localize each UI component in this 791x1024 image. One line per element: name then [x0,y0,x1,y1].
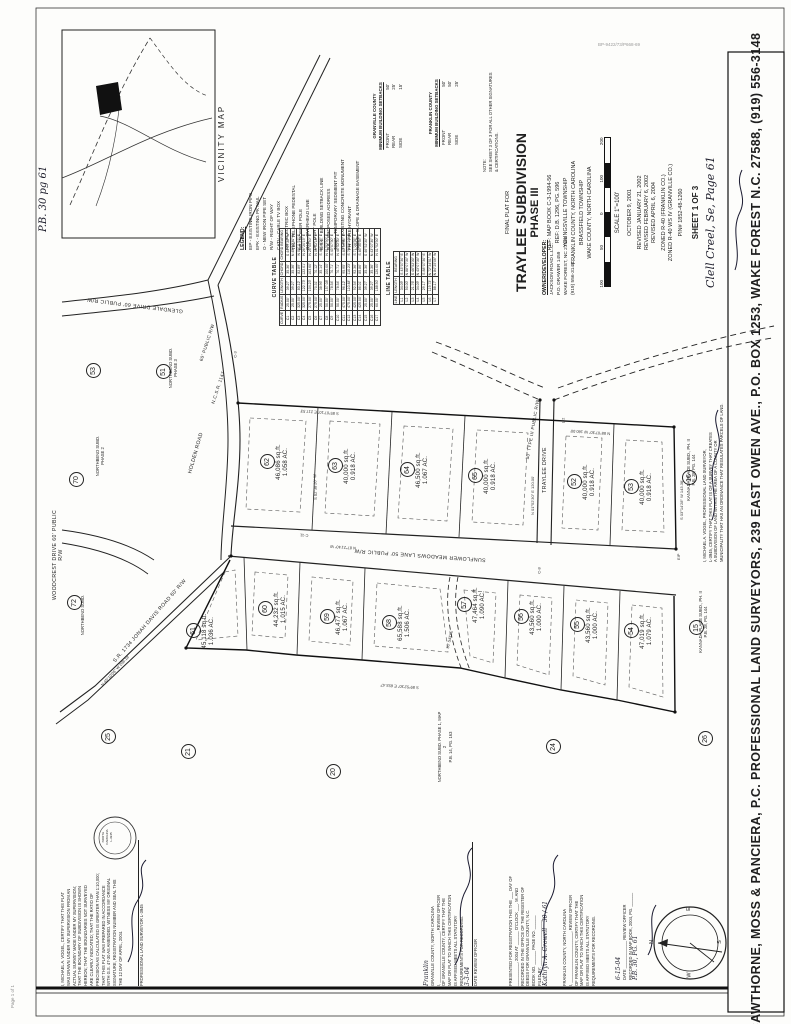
lot-number-circle: 59 [320,610,335,625]
county-2: WAKE COUNTY, NORTH CAROLINA [587,55,593,370]
kannada-place-note: KANNADA PLACE SUBD., PH. IIP.B. 28, PG. … [686,424,698,516]
lot-number-circle: 60 [258,602,273,617]
lot-area-acres: 1.067 AC. [423,452,430,488]
north-arrow-compass [654,907,726,979]
compass-n: N [649,940,655,944]
owner-address-1: P.O. DRAWER 1459 [556,219,563,295]
lot-62: 62 46,086 sq.ft.1.058 AC. [260,419,296,505]
bearing-label: S 02°38'20" W [312,474,318,500]
lot-area-sqft: 40,000 sq.ft. [484,458,491,494]
granville-setbacks-subtitle: MINIMUM BUILDING SETBACKS [378,64,384,168]
lot-58: 58 65,588 sq.ft.1.506 AC. [382,581,418,665]
lot-number-circle: 56 [514,610,529,625]
lot-52: 52 40,000 sq.ft.0.918 AC. [567,439,603,525]
vicinity-box [62,30,215,238]
lot-area-sqft: 40,000 sq.ft. [344,448,351,484]
revision-3: REVISED APRIL 6, 2004 [651,55,657,370]
northbend-phase2-note: NORTHBEND SUBD.PHASE 2 [95,427,107,485]
lot-area-acres: 1.067 AC. [343,599,350,635]
lot-divider [561,586,564,690]
adjacent-parcel: 20 [325,764,341,780]
lot-divider [505,581,508,678]
kannada-place-note: KANNADA PLACE SUBD., PH. IIP.B. 28, PG. … [698,576,710,668]
phase-label: PHASE III [529,55,541,370]
vicinity-site-marker [96,82,122,115]
franklin-review-certification: FRANKLIN COUNTY, NORTH CAROLINAI, ______… [562,842,612,986]
handwritten-map-book-ref: P.B. 30, PG. 61 [633,844,639,980]
firm-strip-text: CAWTHORNE, MOSS & PANCIERA, P.C. PROFESS… [749,33,763,1024]
curve-ref-label: C-11 [300,533,309,539]
franklin-certification-text: FRANKLIN COUNTY, NORTH CAROLINAI, ______… [562,842,597,986]
revision-1: REVISED JANUARY 21, 2002 [637,55,643,370]
lot-area-sqft: 46,477 sq.ft. [336,599,343,635]
lot-divider [244,557,247,650]
lot-area-sqft: 43,560 sq.ft. [530,599,537,635]
lot-64: 64 46,500 sq.ft.1.067 AC. [400,427,436,513]
lot-area-sqft: 45,118 sq.ft. [202,613,209,648]
lot-area-acres: 0.918 AC. [351,448,358,484]
lot-area-sqft: 47,019 sq.ft. [640,613,647,649]
franklin-setbacks: FRANKLIN COUNTY MINIMUM BUILDING SETBACK… [428,58,464,168]
scale-label: SCALE 1"=100' [615,55,621,370]
plat-date: OCTOBER 9, 2001 [627,55,633,370]
seal-text: NORTHCAROLINAL-3945 [101,822,127,852]
lot-number-circle: 52 [567,475,582,490]
adjacent-parcel: 25 [100,729,116,745]
setback-row: SIDE15' [398,84,404,148]
review-officer-signature-line: DATE REVIEW OFFICER [472,842,479,986]
lot-number-circle: 65 [468,469,483,484]
lot-number-circle: 58 [382,616,397,631]
lot-number-circle: 61 [186,624,201,639]
township-1: YOUNGSVILLE TOWNSHIP [563,55,569,370]
curve-table-block: CURVE TABLE CURVERADIUSLENGTHCHORDCHORD … [272,192,384,362]
lot-number-circle: 55 [570,618,585,633]
traylee-drive-edge [537,400,540,543]
title-block: FINAL PLAT FOR TRAYLEE SUBDIVISION PHASE… [503,55,743,370]
surveyor-signature-line: PROFESSIONAL LAND SURVEYOR L-3945 [138,840,145,986]
lot-area-acres: 1.090 AC. [480,587,487,623]
subdivision-title: TRAYLEE SUBDIVISION [513,55,529,370]
lot-number-circle: 62 [260,455,275,470]
lot-area-acres: 1.058 AC. [283,444,290,480]
vicinity-road [150,38,208,96]
registration-certification: PRESENTED FOR REGISTRATION THIS THE ___ … [508,842,564,986]
lot-area-sqft: 40,000 sq.ft. [640,469,647,505]
owner-phone: (919) 556-3148 [570,219,577,295]
vicinity-road [100,116,206,162]
lot-54: 54 47,019 sq.ft.1.079 AC. [624,589,660,673]
franklin-setbacks-subtitle: MINIMUM BUILDING SETBACKS [434,58,440,168]
legend-title: LEGEND: [240,58,247,250]
curve-ref-label: C-8 [537,567,542,573]
lot-57: 57 47,464 sq.ft.1.090 AC. [457,563,493,647]
bearing-label: N 01°52'30" E 120.00' [530,476,535,515]
plat-sheet: BP-9422/73/P668-69 Page 1 of 1 P.B. 30 p… [0,0,791,1024]
northbend-phase3-note: NORTHBEND SUBD.PHASE 3 [168,338,180,398]
lot-area-acres: 1.036 AC. [209,613,216,648]
lot-number-circle: 64 [400,463,415,478]
woodcrest-drive-label: WOODCREST DRIVE 60' PUBLIC R/W [52,505,64,605]
compass-s: S [717,940,723,944]
revision-2: REVISED FEBRUARY 6, 2002 [644,55,650,370]
northbend-note: NORTHBEND SUBD. [80,592,87,638]
owner-name: JACKSON ROAD L.L.C. [549,219,556,295]
lot-area-acres: 1.079 AC. [647,613,654,649]
vicinity-road [70,38,150,205]
sheet-note: NOTE:SEE SHEET 3 OF 3 FOR ALL OTHER SIGN… [482,58,502,172]
handwritten-date: 3-3-04 [465,842,471,986]
lot-area-acres: 1.000 AC. [537,599,544,635]
granville-review-certification: Franklin GRANVILLE COUNTY, NORTH CAROLIN… [424,842,506,986]
lot-65: 65 40,000 sq.ft.0.918 AC. [468,433,504,519]
lot-area-sqft: 47,464 sq.ft. [473,587,480,623]
lot-divider [312,407,318,530]
line-table: LINELENGTHBEARINGL134.09'S 43°07'30" EL2… [393,226,439,330]
handwritten-plat-book-note: P.B. 30 pg 61 [38,132,54,232]
lot-divider [617,591,620,700]
owner-address-2: WAKE FOREST, NC 27588 [563,219,570,295]
traylee-drive-label: TRAYLEE DRIVE [542,435,552,505]
lot-53: 53 40,000 sq.ft.0.918 AC. [624,444,660,530]
sunflower-lane-edge [231,526,676,549]
firm-strip: CAWTHORNE, MOSS & PANCIERA, P.C. PROFESS… [734,55,778,1010]
scale-bar [604,138,611,288]
scale-bar-block: 100500100200 [599,55,611,370]
bearing-label: S 03°14'28" W 143.38' [679,480,684,520]
granville-certification-text: GRANVILLE COUNTY, NORTH CAROLINAI, _____… [430,842,465,986]
owner-heading: OWNER/DEVELOPER: [542,219,549,295]
adjacent-parcel: 53 [85,363,101,379]
line-ref-label: L-2 [560,418,565,424]
lot-area-sqft: 44,232 sq.ft. [274,591,281,627]
sheet-number: SHEET 1 OF 3 [691,55,700,370]
county-1: FRANKLIN COUNTY, NORTH CAROLINA [571,55,577,370]
lot-area-sqft: 40,000 sq.ft. [583,464,590,500]
adjacent-parcel: 70 [68,472,84,488]
lot-divider [386,412,392,534]
scan-artifact-code: BP-9422/73/P668-69 [598,42,640,47]
adjacent-parcel: 26 [697,731,713,747]
handwritten-filed-by: Kathryn A. Crowell 30 / 61 [543,842,549,986]
lot-63: 63 40,000 sq.ft.0.918 AC. [328,423,364,509]
lot-61: 61 45,118 sq.ft.1.036 AC. [186,591,220,671]
eip-marker-label: EIP [676,554,681,560]
curve-table-title: CURVE TABLE [272,192,278,362]
lot-59: 59 46,477 sq.ft.1.067 AC. [320,575,356,659]
ref-deed-book: REF: D.B. 1296, PG. 596 [555,55,561,370]
lot-number-circle: 54 [624,624,639,639]
lot-area-acres: 0.918 AC. [647,469,654,505]
owner-developer-block: OWNER/DEVELOPER: JACKSON ROAD L.L.C. P.O… [542,219,584,295]
setback-row: SIDE25' [454,81,460,145]
lot-55: 55 43,560 sq.ft.1.000 AC. [570,583,606,667]
lot-divider [297,562,300,655]
lot-area-acres: 0.918 AC. [491,458,498,494]
line-table-block: LINE TABLE LINELENGTHBEARINGL134.09'S 43… [386,226,442,330]
zoning-1: ZONED R-40 (FRANKLIN CO.) [661,55,667,370]
lot-area-acres: 1.000 AC. [593,607,600,643]
pin-number: PIN# 1852-48-1260 [678,55,684,370]
lot-number-circle: 63 [328,459,343,474]
ref-map-book: REF: MAP BOOK C-3-1994-56 [547,55,553,370]
lot-area-sqft: 43,560 sq.ft. [586,607,593,643]
township-2: BRASSFIELD TOWNSHIP [579,55,585,370]
lot-divider [362,568,365,660]
adjacent-parcel: 24 [545,739,561,755]
surveyor-certification: I, MICHAEL A. VOGEL, CERTIFY THAT THIS P… [60,840,168,986]
sunflower-lane-edge [228,556,676,595]
lot-divider [459,416,465,537]
lot-area-acres: 0.918 AC. [590,464,597,500]
lot-area-sqft: 46,086 sq.ft. [276,444,283,480]
granville-setbacks: GRANVILLE COUNTY MINIMUM BUILDING SETBAC… [372,64,408,168]
line-table-title: LINE TABLE [386,226,392,330]
recorded-note: 6-15-04 DATE ____________ REVIEW OFFICER… [616,844,662,980]
scan-page-footer: Page 1 of 1 [10,938,20,1008]
final-plat-for: FINAL PLAT FOR [505,55,511,370]
lot-number-circle: 53 [624,480,639,495]
northbend-phase1-note: NORTHBEND SUBD. PHASE 1, MAP 2P.B. 14, P… [437,710,449,784]
compass-e: E [686,907,692,911]
curve-ref-label: C-3 [233,351,238,357]
zoning-2: ZONED R-40 WS IV (GRANVILLE CO.) [668,55,674,370]
lot-area-sqft: 46,500 sq.ft. [416,452,423,488]
lot-area-acres: 1.015 AC. [281,591,288,627]
lot-60: 60 44,232 sq.ft.1.015 AC. [258,567,294,651]
lot-area-acres: 1.506 AC. [405,605,412,641]
registration-certification-text: PRESENTED FOR REGISTRATION THIS THE ___ … [508,842,543,986]
adjacent-parcel: 21 [180,744,196,760]
lot-number-circle: 57 [457,598,472,613]
compass-w: W [687,972,693,977]
holden-road-edge [218,285,240,556]
lot-56: 56 43,560 sq.ft.1.000 AC. [514,575,550,659]
vicinity-map-title: VICINITY MAP [217,74,230,182]
lot-divider [610,424,614,545]
surveyor-certification-text: I, MICHAEL A. VOGEL, CERTIFY THAT THIS P… [60,840,124,986]
curve-table: CURVERADIUSLENGTHCHORDCHORD BEARINGC125.… [279,192,381,362]
woodcrest-drive-edge [62,543,148,574]
lot-area-sqft: 65,588 sq.ft. [398,605,405,641]
vicinity-road [62,118,212,178]
